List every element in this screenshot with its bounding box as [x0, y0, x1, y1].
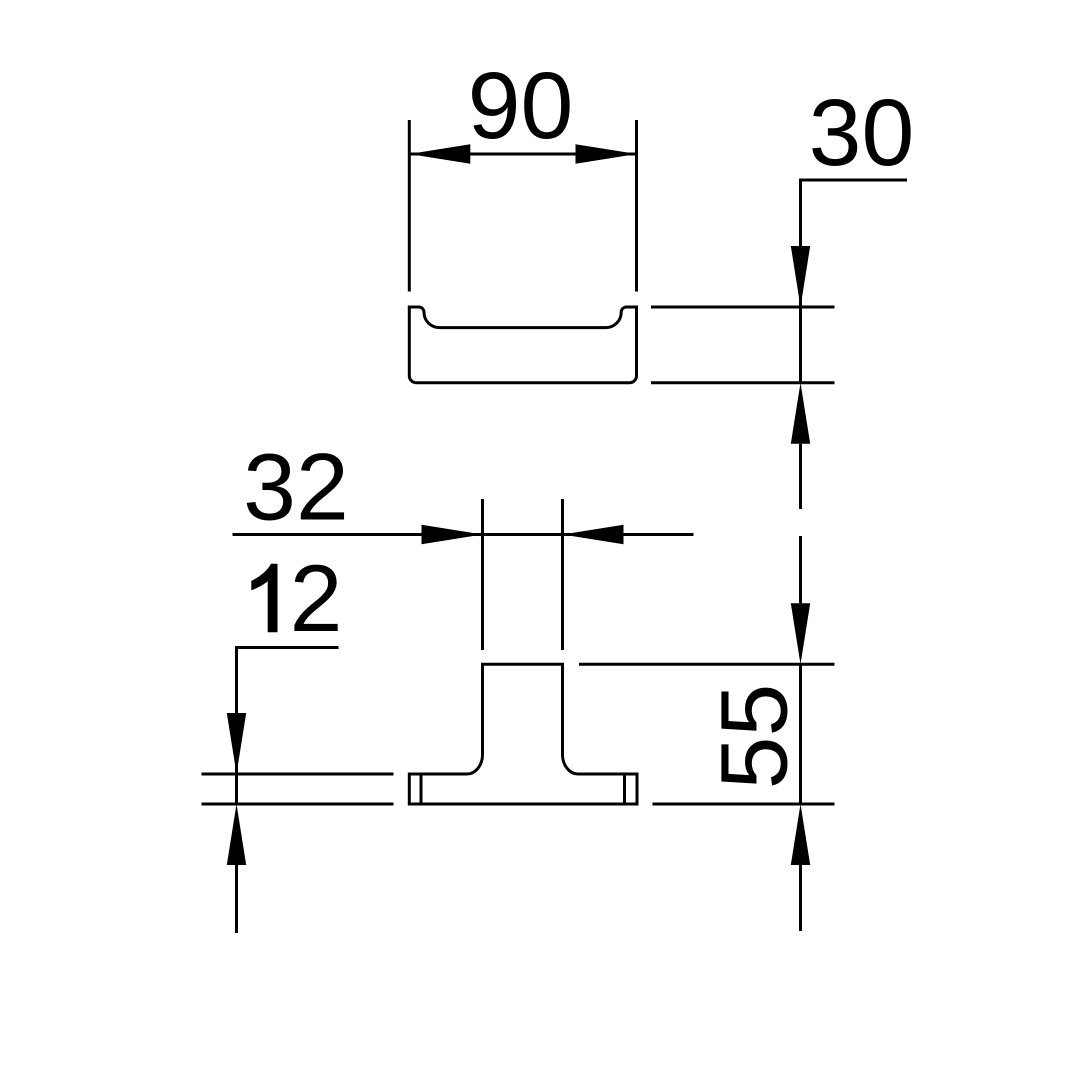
svg-text:90: 90: [468, 53, 574, 159]
svg-text:30: 30: [809, 80, 915, 186]
svg-text:2: 2: [290, 546, 343, 652]
svg-text:32: 32: [243, 435, 349, 541]
svg-text:55: 55: [702, 684, 808, 790]
